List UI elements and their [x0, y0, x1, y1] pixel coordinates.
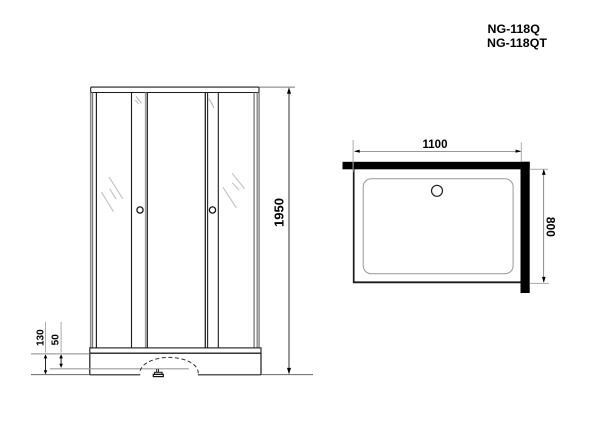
svg-text:NG-118Q: NG-118Q: [488, 22, 541, 36]
svg-text:800: 800: [544, 217, 558, 237]
svg-text:50: 50: [50, 334, 61, 346]
svg-text:1950: 1950: [272, 198, 287, 227]
svg-text:1100: 1100: [423, 139, 448, 151]
svg-text:130: 130: [36, 329, 47, 346]
svg-text:NG-118QT: NG-118QT: [487, 36, 547, 50]
